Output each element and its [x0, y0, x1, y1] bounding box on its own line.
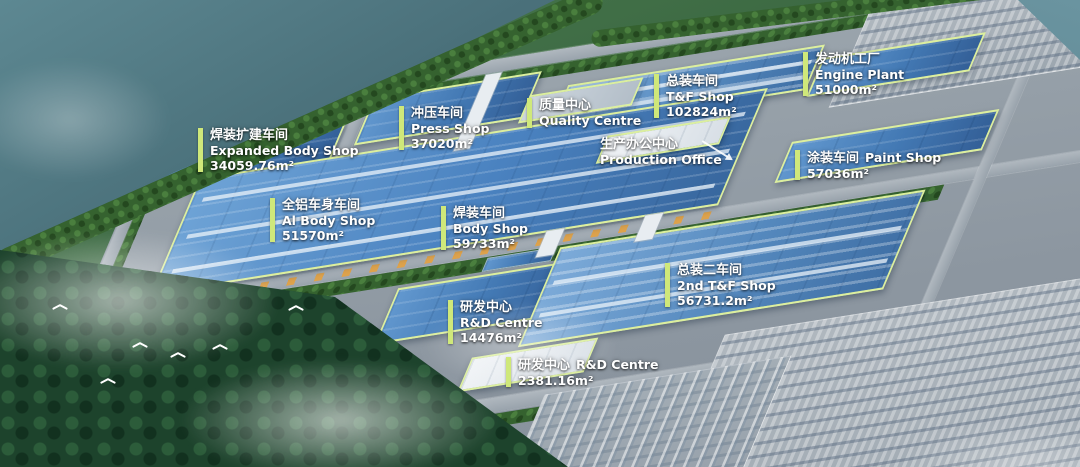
building-area: 14476m² — [460, 330, 542, 345]
building-name-en: R&D Centre — [460, 315, 542, 330]
building-area: 34059.76m² — [210, 158, 359, 173]
factory-campus-aerial-view: 焊装扩建车间 Expanded Body Shop 34059.76m² 冲压车… — [0, 0, 1080, 467]
building-name-en: Production Office — [600, 152, 722, 167]
label-rd-centre: 研发中心 R&D Centre 14476m² — [448, 300, 542, 345]
building-name-zh: 质量中心 — [539, 98, 641, 113]
bird-icon — [212, 342, 228, 351]
bird-icon — [288, 303, 304, 312]
bird-icon — [100, 376, 116, 385]
building-area: 37020m² — [411, 136, 489, 151]
building-name-zh: 发动机工厂 — [815, 52, 904, 67]
building-name-zh: 研发中心 — [518, 358, 570, 373]
building-area: 51570m² — [282, 228, 375, 243]
bird-icon — [52, 302, 68, 311]
label-press-shop: 冲压车间 Press Shop 37020m² — [399, 106, 489, 151]
building-name-en: Al Body Shop — [282, 213, 375, 228]
label-marker-bar — [795, 150, 800, 180]
building-name-zh: 总装车间 — [666, 74, 737, 89]
label-rd-centre-annex: 研发中心R&D Centre 2381.16m² — [506, 357, 658, 388]
building-area: 57036m² — [807, 166, 941, 181]
label-body-shop: 焊装车间 Body Shop 59733m² — [441, 206, 528, 251]
building-name-en: Paint Shop — [865, 150, 941, 165]
building-name-zh: 总装二车间 — [677, 263, 776, 278]
label-marker-bar — [527, 98, 532, 128]
building-name-zh: 研发中心 — [460, 300, 542, 315]
building-area: 59733m² — [453, 236, 528, 251]
label-marker-bar — [803, 52, 808, 96]
building-name-en: Press Shop — [411, 121, 489, 136]
building-name-en: Quality Centre — [539, 113, 641, 128]
building-name-zh: 焊装扩建车间 — [210, 128, 359, 143]
bird-icon — [170, 350, 186, 359]
building-name-zh: 冲压车间 — [411, 106, 489, 121]
label-second-tf-shop: 总装二车间 2nd T&F Shop 56731.2m² — [665, 263, 776, 308]
label-marker-bar — [270, 198, 275, 242]
label-paint-shop: 涂装车间Paint Shop 57036m² — [795, 150, 941, 181]
building-name-en: R&D Centre — [576, 357, 658, 372]
label-al-body-shop: 全铝车身车间 Al Body Shop 51570m² — [270, 198, 375, 243]
building-name-en: T&F Shop — [666, 89, 737, 104]
building-name-zh: 生产办公中心 — [600, 137, 722, 152]
label-marker-bar — [448, 300, 453, 344]
label-engine-plant: 发动机工厂 Engine Plant 51000m² — [803, 52, 904, 97]
label-expanded-body-shop: 焊装扩建车间 Expanded Body Shop 34059.76m² — [198, 128, 359, 173]
building-area: 51000m² — [815, 82, 904, 97]
building-name-en: Expanded Body Shop — [210, 143, 359, 158]
building-name-zh: 全铝车身车间 — [282, 198, 375, 213]
building-area: 2381.16m² — [518, 373, 658, 388]
building-name-zh: 涂装车间 — [807, 151, 859, 166]
building-name-zh: 焊装车间 — [453, 206, 528, 221]
label-production-office: 生产办公中心 Production Office — [600, 137, 722, 167]
label-marker-bar — [399, 106, 404, 150]
label-tf-shop: 总装车间 T&F Shop 102824m² — [654, 74, 737, 119]
label-quality-centre: 质量中心 Quality Centre — [527, 98, 641, 128]
building-area: 102824m² — [666, 104, 737, 119]
bird-icon — [132, 340, 148, 349]
label-marker-bar — [198, 128, 203, 172]
label-marker-bar — [441, 206, 446, 250]
label-marker-bar — [506, 357, 511, 387]
building-name-en: Body Shop — [453, 221, 528, 236]
label-marker-bar — [665, 263, 670, 307]
building-name-en: 2nd T&F Shop — [677, 278, 776, 293]
building-area: 56731.2m² — [677, 293, 776, 308]
building-name-en: Engine Plant — [815, 67, 904, 82]
label-marker-bar — [654, 74, 659, 118]
